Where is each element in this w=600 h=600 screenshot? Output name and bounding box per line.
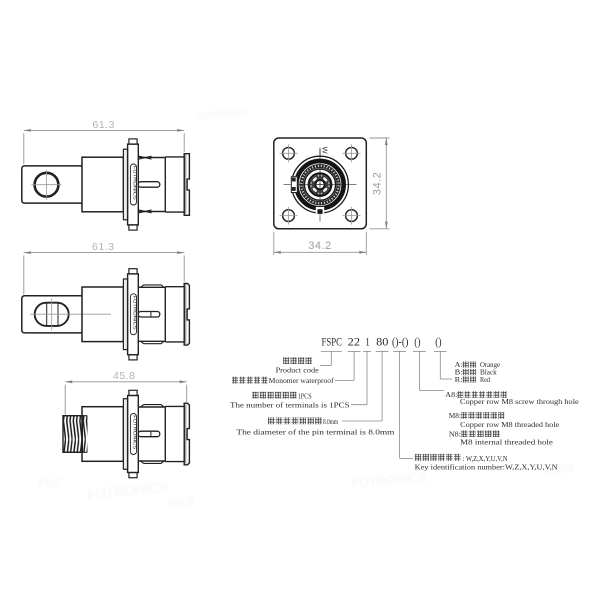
- svg-text:FUTRONICS: FUTRONICS: [132, 415, 137, 449]
- svg-text:N8:: N8:: [449, 429, 461, 438]
- svg-text:()-(): ()-(): [392, 336, 409, 348]
- svg-text:A8:: A8:: [445, 390, 457, 399]
- svg-text:Monomer waterproof: Monomer waterproof: [269, 376, 334, 385]
- svg-text:R:: R:: [455, 375, 463, 384]
- svg-text:Red: Red: [480, 375, 490, 384]
- svg-text:1PCS: 1PCS: [298, 392, 312, 400]
- svg-text:61.3: 61.3: [92, 241, 114, 253]
- svg-text:61.3: 61.3: [93, 119, 115, 131]
- svg-text:(): (): [414, 336, 420, 348]
- svg-text:The number of terminals is 1PC: The number of terminals is 1PCS: [230, 401, 350, 410]
- svg-text:NICS: NICS: [168, 496, 195, 509]
- svg-text:8.0mm: 8.0mm: [323, 418, 339, 426]
- svg-text:22: 22: [348, 336, 361, 348]
- svg-text:(): (): [435, 336, 441, 348]
- svg-text:The diameter of the pin termin: The diameter of the pin terminal is 8.0m…: [236, 427, 394, 436]
- svg-text:W: W: [320, 147, 329, 155]
- svg-text:M8 internal threaded hole: M8 internal threaded hole: [460, 438, 553, 447]
- svg-text:34.2: 34.2: [372, 172, 384, 195]
- svg-text:FSPC: FSPC: [322, 336, 343, 348]
- svg-text:45.8: 45.8: [113, 370, 135, 382]
- svg-text:Copper row M8 screw through ho: Copper row M8 screw through hole: [460, 397, 579, 406]
- svg-text:80: 80: [376, 336, 389, 348]
- svg-text:FUTRONICS: FUTRONICS: [132, 166, 137, 200]
- svg-text:FUTRONICS: FUTRONICS: [132, 296, 137, 330]
- svg-text:1: 1: [365, 336, 370, 348]
- svg-text:Copper row M8 threaded hole: Copper row M8 threaded hole: [460, 420, 560, 429]
- svg-text:34.2: 34.2: [308, 240, 331, 252]
- svg-text:M8:: M8:: [449, 411, 461, 420]
- svg-text:Key identification number:W,Z,: Key identification number:W,Z,X,Y,U,V,N: [415, 463, 559, 472]
- svg-text:Product code: Product code: [276, 365, 320, 374]
